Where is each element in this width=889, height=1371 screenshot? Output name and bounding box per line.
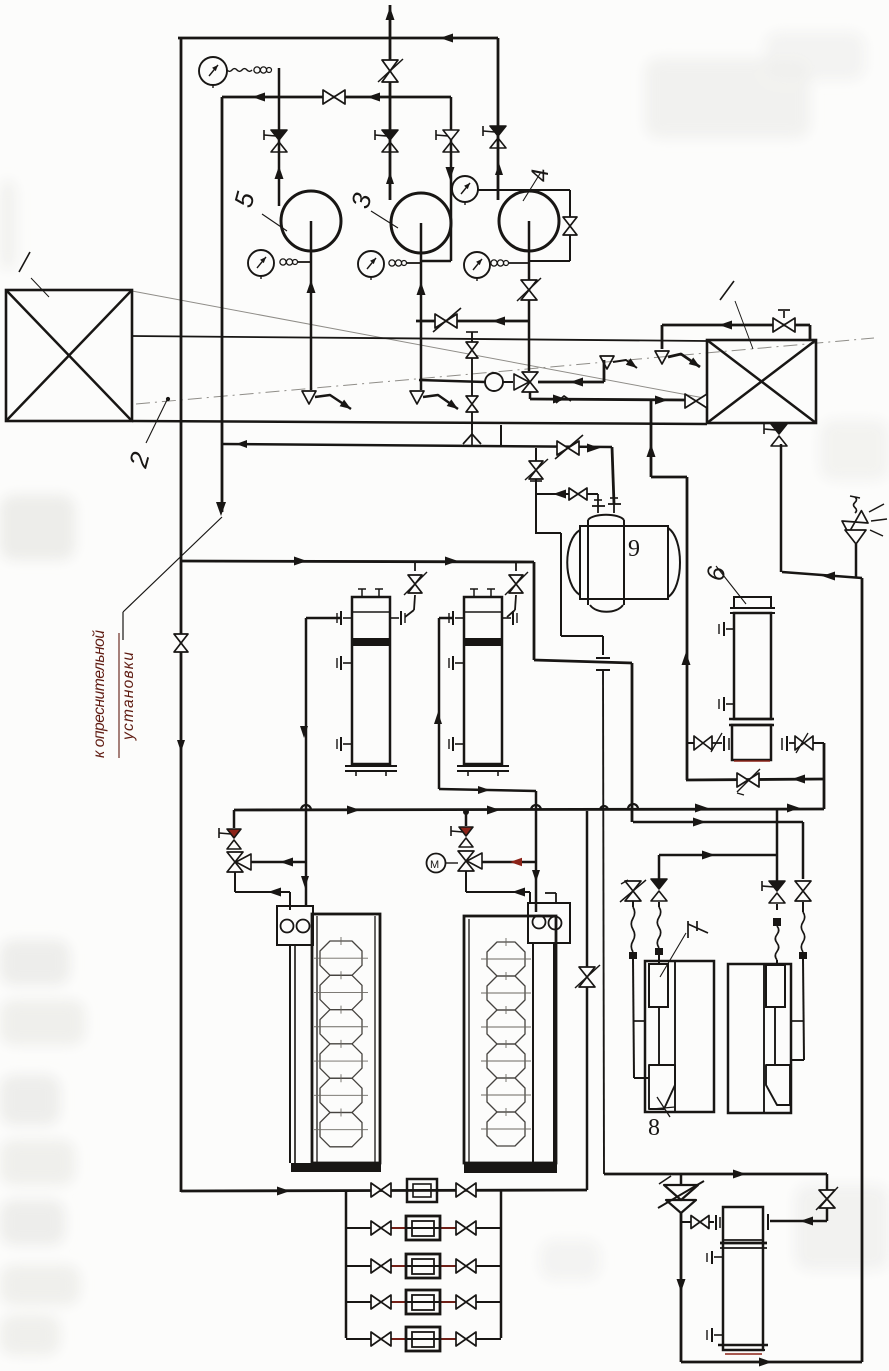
svg-text:установки: установки <box>120 652 137 741</box>
svg-text:M: M <box>430 859 439 871</box>
svg-text:4: 4 <box>527 169 554 182</box>
svg-text:8: 8 <box>648 1115 660 1141</box>
svg-text:к опреснительной: к опреснительной <box>91 630 108 758</box>
svg-text:9: 9 <box>628 536 640 562</box>
